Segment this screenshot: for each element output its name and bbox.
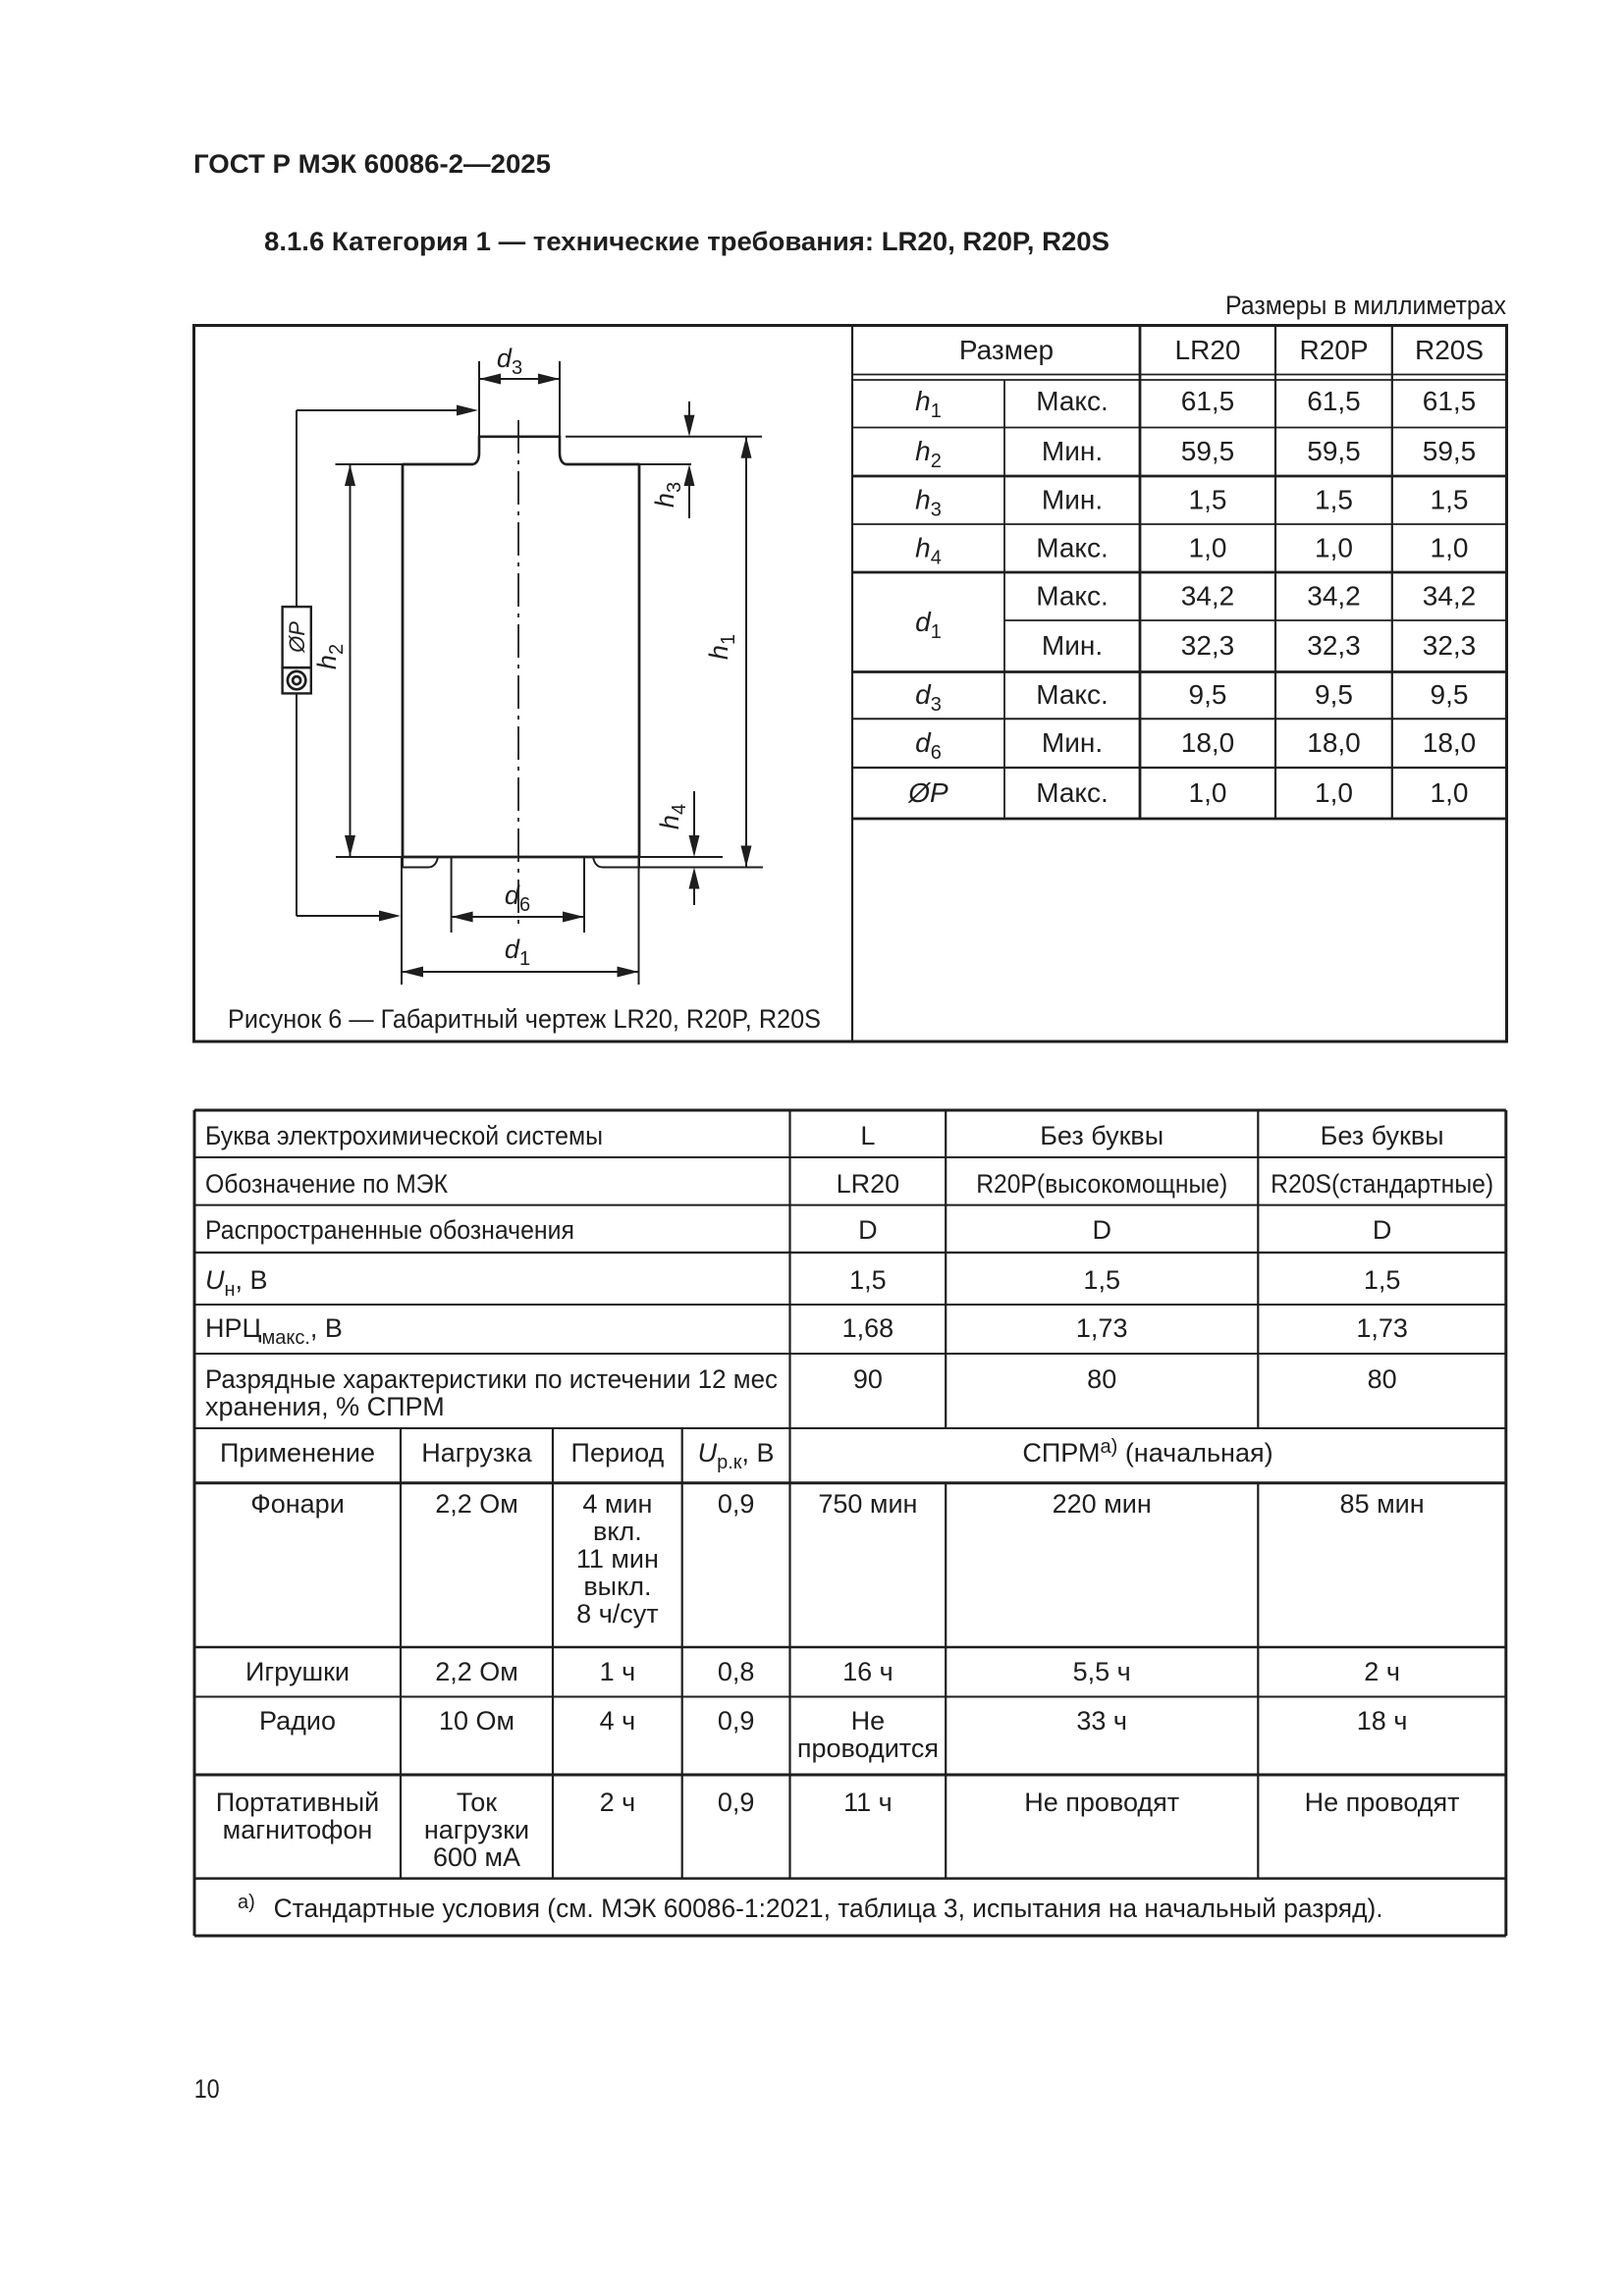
svg-text:16 ч: 16 ч (842, 1657, 893, 1686)
svg-text:R20P(высокомощные): R20P(высокомощные) (976, 1169, 1227, 1199)
svg-text:Мин.: Мин. (1042, 485, 1103, 515)
svg-text:Фонари: Фонари (250, 1489, 345, 1519)
svg-text:8 ч/сут: 8 ч/сут (576, 1599, 658, 1629)
svg-text:Мин.: Мин. (1042, 727, 1103, 758)
svg-text:a): a) (238, 1892, 255, 1913)
svg-text:Макс.: Макс. (1036, 581, 1109, 612)
svg-text:10 Ом: 10 Ом (439, 1706, 514, 1735)
svg-text:ГОСТ Р МЭК 60086-2—2025: ГОСТ Р МЭК 60086-2—2025 (193, 149, 551, 179)
svg-text:1,5: 1,5 (1364, 1265, 1401, 1295)
svg-text:хранения, % СПРМ: хранения, % СПРМ (205, 1392, 445, 1421)
svg-text:11 мин: 11 мин (576, 1544, 659, 1574)
svg-text:Стандартные условия (см. МЭК 6: Стандартные условия (см. МЭК 60086-1:202… (274, 1894, 1383, 1923)
svg-text:нагрузки: нагрузки (424, 1815, 529, 1844)
svg-text:Не проводят: Не проводят (1024, 1788, 1179, 1817)
svg-text:1,5: 1,5 (1315, 485, 1353, 515)
svg-text:0,9: 0,9 (718, 1788, 755, 1817)
svg-text:0,9: 0,9 (718, 1489, 755, 1519)
svg-text:4 ч: 4 ч (600, 1706, 636, 1735)
svg-text:выкл.: выкл. (583, 1572, 651, 1601)
svg-text:Размер: Размер (959, 335, 1054, 365)
svg-text:проводится: проводится (797, 1734, 939, 1763)
svg-text:32,3: 32,3 (1423, 630, 1477, 661)
svg-text:18,0: 18,0 (1423, 727, 1477, 758)
svg-text:Игрушки: Игрушки (245, 1657, 350, 1686)
svg-text:R20P: R20P (1299, 335, 1368, 365)
svg-text:9,5: 9,5 (1315, 679, 1353, 710)
svg-text:Радио: Радио (259, 1706, 336, 1735)
svg-text:1,73: 1,73 (1076, 1313, 1128, 1343)
svg-text:1,0: 1,0 (1315, 777, 1353, 808)
svg-text:1,0: 1,0 (1189, 533, 1227, 563)
svg-text:СПРМa) (начальная): СПРМa) (начальная) (1022, 1436, 1272, 1468)
svg-text:D: D (1092, 1215, 1111, 1245)
svg-text:0,9: 0,9 (718, 1706, 755, 1735)
svg-text:1,5: 1,5 (849, 1265, 887, 1295)
svg-text:59,5: 59,5 (1423, 436, 1477, 466)
svg-text:Портативный: Портативный (216, 1788, 380, 1817)
svg-text:Ток: Ток (457, 1788, 497, 1817)
svg-text:Применение: Применение (220, 1438, 375, 1468)
svg-text:61,5: 61,5 (1423, 386, 1477, 416)
svg-text:R20S: R20S (1415, 335, 1484, 365)
svg-text:11 ч: 11 ч (843, 1788, 893, 1817)
svg-text:ØP: ØP (285, 621, 309, 654)
svg-text:Мин.: Мин. (1042, 436, 1103, 466)
svg-text:18,0: 18,0 (1307, 727, 1361, 758)
svg-text:220 мин: 220 мин (1053, 1489, 1152, 1519)
svg-text:магнитофон: магнитофон (223, 1815, 373, 1844)
svg-text:34,2: 34,2 (1423, 581, 1477, 612)
svg-text:D: D (1373, 1215, 1392, 1245)
svg-text:2 ч: 2 ч (600, 1788, 636, 1817)
svg-text:85 мин: 85 мин (1340, 1489, 1425, 1519)
svg-text:18 ч: 18 ч (1357, 1706, 1408, 1735)
svg-text:80: 80 (1087, 1364, 1116, 1394)
svg-text:1,5: 1,5 (1083, 1265, 1120, 1295)
svg-text:750 мин: 750 мин (818, 1489, 917, 1519)
svg-text:2,2 Ом: 2,2 Ом (435, 1489, 518, 1519)
svg-text:1,0: 1,0 (1431, 533, 1469, 563)
svg-text:8.1.6 Категория 1 — технически: 8.1.6 Категория 1 — технические требован… (264, 227, 1110, 256)
svg-text:Макс.: Макс. (1036, 679, 1109, 710)
svg-text:59,5: 59,5 (1181, 436, 1235, 466)
svg-text:Разрядные характеристики по ис: Разрядные характеристики по истечении 12… (205, 1364, 778, 1394)
svg-text:2 ч: 2 ч (1364, 1657, 1400, 1686)
svg-text:1,73: 1,73 (1356, 1313, 1408, 1343)
svg-text:Макс.: Макс. (1036, 386, 1109, 416)
svg-text:Без буквы: Без буквы (1040, 1121, 1164, 1150)
svg-text:Период: Период (571, 1438, 665, 1468)
svg-text:Мин.: Мин. (1042, 630, 1103, 661)
svg-text:Не проводят: Не проводят (1305, 1788, 1460, 1817)
svg-text:ØP: ØP (907, 777, 948, 808)
svg-text:Рисунок 6 — Габаритный чертеж: Рисунок 6 — Габаритный чертеж LR20, R20P… (228, 1004, 821, 1034)
svg-text:9,5: 9,5 (1431, 679, 1469, 710)
svg-text:59,5: 59,5 (1307, 436, 1361, 466)
svg-text:32,3: 32,3 (1307, 630, 1361, 661)
svg-text:1,0: 1,0 (1315, 533, 1353, 563)
svg-text:LR20: LR20 (837, 1169, 900, 1199)
svg-text:1,0: 1,0 (1431, 777, 1469, 808)
svg-text:34,2: 34,2 (1307, 581, 1361, 612)
svg-text:1,0: 1,0 (1189, 777, 1227, 808)
svg-text:Макс.: Макс. (1036, 533, 1109, 563)
svg-text:1 ч: 1 ч (600, 1657, 636, 1686)
svg-text:18,0: 18,0 (1181, 727, 1235, 758)
svg-text:D: D (858, 1215, 878, 1245)
svg-text:Распространенные обозначения: Распространенные обозначения (205, 1215, 574, 1245)
svg-text:L: L (860, 1121, 875, 1150)
svg-text:Без буквы: Без буквы (1321, 1121, 1444, 1150)
svg-text:90: 90 (853, 1364, 883, 1394)
svg-text:9,5: 9,5 (1189, 679, 1227, 710)
svg-text:34,2: 34,2 (1181, 581, 1235, 612)
svg-text:80: 80 (1368, 1364, 1397, 1394)
svg-text:61,5: 61,5 (1181, 386, 1235, 416)
svg-text:вкл.: вкл. (593, 1517, 642, 1546)
svg-text:61,5: 61,5 (1307, 386, 1361, 416)
svg-text:1,5: 1,5 (1431, 485, 1469, 515)
svg-text:1,5: 1,5 (1189, 485, 1227, 515)
svg-text:32,3: 32,3 (1181, 630, 1235, 661)
svg-text:Не: Не (851, 1706, 886, 1735)
svg-text:Макс.: Макс. (1036, 777, 1109, 808)
svg-text:2,2 Ом: 2,2 Ом (435, 1657, 518, 1686)
svg-text:LR20: LR20 (1175, 335, 1241, 365)
svg-text:Обозначение по МЭК: Обозначение по МЭК (205, 1169, 448, 1199)
svg-text:33 ч: 33 ч (1076, 1706, 1127, 1735)
svg-text:10: 10 (194, 2074, 220, 2104)
svg-text:600 мА: 600 мА (433, 1842, 520, 1872)
svg-text:R20S(стандартные): R20S(стандартные) (1271, 1169, 1493, 1199)
svg-text:Нагрузка: Нагрузка (421, 1438, 532, 1468)
svg-text:0,8: 0,8 (718, 1657, 755, 1686)
svg-text:5,5 ч: 5,5 ч (1073, 1657, 1131, 1686)
svg-text:Размеры в миллиметрах: Размеры в миллиметрах (1225, 291, 1506, 320)
svg-text:1,68: 1,68 (842, 1313, 894, 1343)
svg-text:Буква электрохимической систем: Буква электрохимической системы (205, 1121, 603, 1150)
svg-text:4 мин: 4 мин (582, 1489, 652, 1519)
